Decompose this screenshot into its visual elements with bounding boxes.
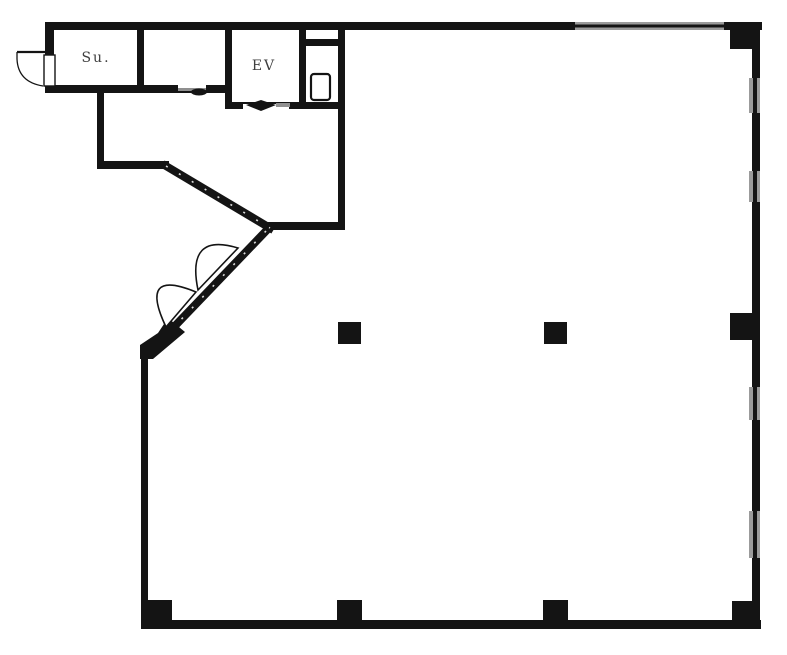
wc-fixture (311, 74, 330, 100)
elevator-label: EV (252, 58, 276, 74)
elevator-door-diamond-marker (246, 100, 276, 111)
column-mid-right (730, 313, 758, 340)
right-window-1-mullion (753, 78, 757, 113)
walls (45, 22, 762, 629)
stair-room-label: Su. (81, 50, 110, 66)
right-window-4-mullion (753, 511, 757, 558)
column-bottom-left (145, 600, 172, 625)
column-bottom-mid-2 (543, 600, 568, 622)
floor-plan-drawing: Su. EV (0, 0, 787, 655)
columns (145, 25, 760, 628)
column-interior-1 (338, 322, 361, 344)
hall-east-wall (338, 28, 345, 228)
stair-room-door-jamb (44, 55, 55, 86)
column-bottom-right (732, 601, 760, 628)
middle-elevator-partition (225, 28, 232, 105)
hall-southeast-wall (266, 222, 345, 230)
right-window-3-mullion (753, 387, 757, 420)
right-window-2-mullion (753, 171, 757, 202)
middle-room-door-marker (191, 89, 207, 96)
left-wall-lower (141, 348, 148, 623)
column-top-right (730, 25, 758, 49)
windows (575, 22, 760, 558)
elevator-door-track (276, 103, 290, 107)
upper-diagonal-texture (166, 166, 270, 228)
top-window-mullion (575, 25, 724, 28)
hall-west-wall (97, 85, 104, 169)
hall-southwest-wall (97, 161, 169, 169)
column-interior-2 (544, 322, 567, 344)
column-bottom-mid-1 (337, 600, 362, 622)
stair-middle-partition (137, 28, 144, 87)
wc-top-band-wall (303, 39, 345, 46)
exterior-door-swing-arc (17, 52, 43, 86)
bottom-wall (141, 620, 761, 629)
floor-plan: Su. EV (0, 0, 787, 655)
